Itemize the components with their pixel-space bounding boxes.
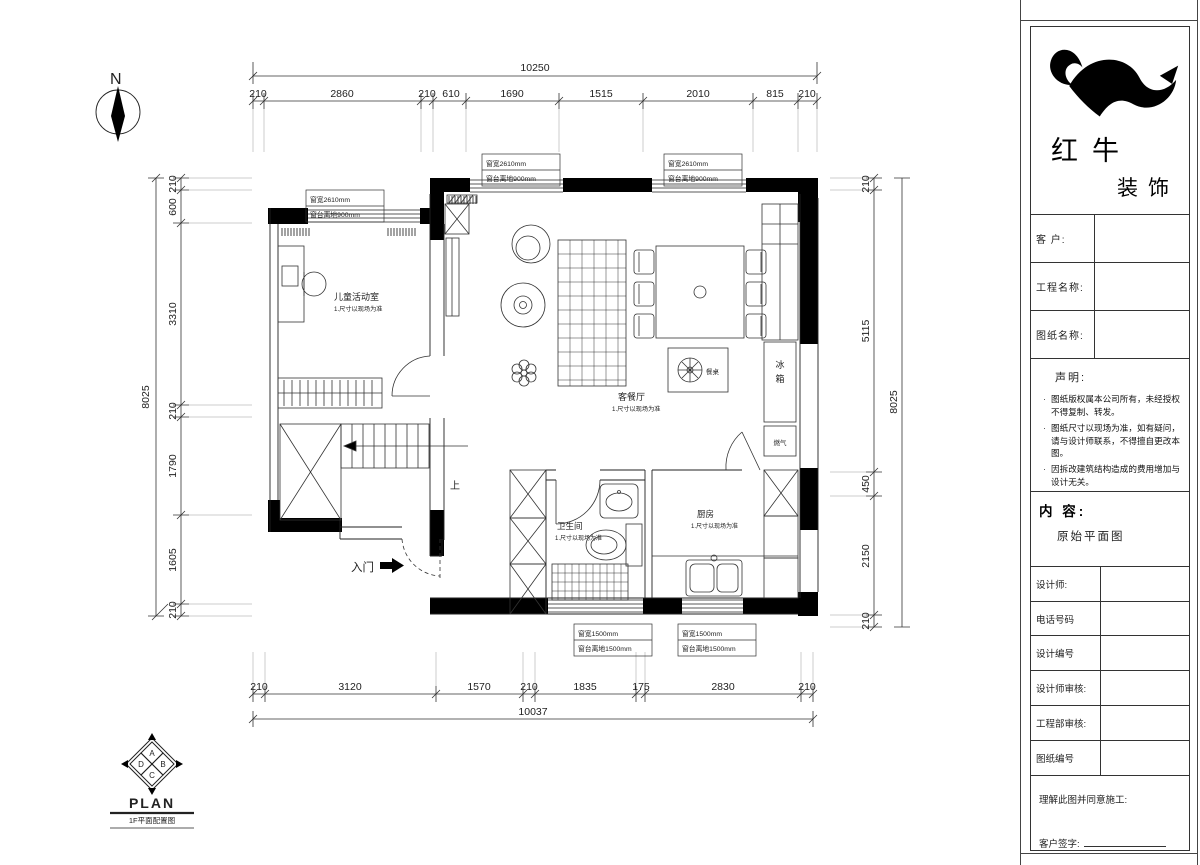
dim-bottom-overall: 10037 [518, 706, 547, 718]
statement-item: 图纸尺寸以现场为准，如有疑问，请与设计师联系，不得擅自更改本图。 [1041, 422, 1183, 461]
sofa [558, 240, 626, 386]
phone-label: 电话号码 [1031, 602, 1101, 636]
dim-chain-left [148, 174, 252, 620]
room-note-living: 1.尺寸以现场为准 [612, 405, 660, 413]
round-table [501, 283, 545, 327]
compass-letter-c: C [149, 771, 155, 780]
dim-label: 5115 [860, 320, 872, 343]
compass-letter-d: D [138, 760, 144, 769]
row-drawing: 图纸名称: [1031, 311, 1189, 359]
dim-labels-right: 8025 210 5115 450 2150 210 [860, 175, 900, 630]
phone-value[interactable] [1101, 602, 1189, 636]
dim-label: 450 [860, 475, 872, 493]
floorplan-canvas: N 10250 210 2860 210 610 1690 1515 2010 … [0, 0, 1020, 865]
room-label-bath: 卫生间 [557, 521, 583, 531]
project-name-value[interactable] [1095, 263, 1189, 310]
signature-block: 理解此图并同意施工: 客户签字: [1031, 776, 1189, 850]
dim-label: 2010 [686, 88, 710, 100]
dim-label: 175 [632, 681, 650, 693]
gas-label: 燃气 [774, 438, 788, 447]
plant-icon [512, 360, 536, 386]
walls [268, 178, 818, 616]
dim-label: 600 [167, 198, 179, 216]
statement-title: 声明: [1055, 369, 1183, 385]
bathroom: 卫生间 1.尺寸以现场为准 [510, 470, 642, 614]
titleblock-border [1197, 0, 1198, 865]
fridge-label-1: 冰 [775, 359, 784, 370]
drawing-sheet: N 10250 210 2860 210 610 1690 1515 2010 … [0, 0, 1200, 865]
window-tag-line1: 窗宽2610mm [668, 159, 708, 168]
plant-icon [678, 358, 702, 382]
sheet-no-value[interactable] [1101, 741, 1189, 775]
dim-label: 210 [798, 681, 816, 693]
design-no-label: 设计编号 [1031, 636, 1101, 670]
dim-labels-top: 10250 210 2860 210 610 1690 1515 2010 81… [249, 62, 816, 100]
window-tag-line1: 窗宽1500mm [682, 629, 722, 638]
titleblock-border [1020, 20, 1198, 21]
dim-label: 210 [167, 402, 179, 420]
room-label-living: 客餐厅 [618, 391, 645, 402]
dim-right-overall: 8025 [888, 390, 900, 414]
dim-label: 210 [860, 175, 872, 193]
content-value: 原始平面图 [1057, 528, 1183, 544]
dim-labels-bottom: 210 3120 1570 210 1835 175 2830 210 1003… [250, 681, 816, 718]
plan-subtitle: 1F平面配置图 [129, 816, 175, 825]
statement-item: 因拆改建筑结构造成的费用增加与设计无关。 [1041, 463, 1183, 489]
row-phone: 电话号码 [1031, 602, 1189, 637]
north-arrow: N [96, 71, 140, 142]
titleblock-frame: 红牛 装饰 客 户: 工程名称: 图纸名称: 声明: 图纸版权属本公司所有，未经… [1030, 26, 1190, 851]
designer-value[interactable] [1101, 567, 1189, 601]
dim-label: 2830 [711, 681, 735, 693]
window-tag-line2: 窗台离地900mm [668, 174, 718, 183]
entry-arrow-icon [392, 558, 404, 573]
dept-audit-label: 工程部审核: [1031, 706, 1101, 740]
dining-chairs [634, 250, 766, 338]
kitchen-cabinet [764, 558, 798, 598]
plan-symbol: A B C D PLAN 1F平面配置图 [110, 733, 194, 828]
room-label-kitchen: 厨房 [697, 509, 714, 519]
dim-label: 210 [167, 601, 179, 619]
statement-block: 声明: 图纸版权属本公司所有，未经授权不得复制、转发。 图纸尺寸以现场为准，如有… [1031, 359, 1189, 492]
project-name-label: 工程名称: [1031, 263, 1095, 310]
dim-chain-top [249, 62, 821, 152]
window-tag-1: 窗宽2610mm 窗台离地900mm [306, 190, 384, 222]
row-designer: 设计师: [1031, 567, 1189, 602]
compass-letter-a: A [149, 749, 155, 758]
armchair [512, 225, 550, 263]
client-value[interactable] [1095, 215, 1189, 262]
dim-label: 210 [167, 175, 179, 193]
bull-logo-icon [1033, 33, 1191, 145]
dim-label: 610 [442, 88, 460, 100]
dim-label: 1835 [573, 681, 597, 693]
titleblock: 红牛 装饰 客 户: 工程名称: 图纸名称: 声明: 图纸版权属本公司所有，未经… [1020, 0, 1200, 865]
plan-title: PLAN [129, 795, 175, 811]
dim-label: 210 [249, 88, 267, 100]
row-client: 客 户: [1031, 215, 1189, 263]
design-no-value[interactable] [1101, 636, 1189, 670]
content-label: 内 容: [1039, 500, 1183, 520]
stair-direction-arrow-icon [344, 441, 356, 451]
kitchen-cabinet [764, 516, 798, 558]
dim-label: 1690 [500, 88, 524, 100]
window-tag-4: 窗宽1500mm 窗台离地1500mm [574, 624, 652, 656]
north-label: N [110, 71, 122, 88]
row-dept-audit: 工程部审核: [1031, 706, 1189, 741]
room-note-bath: 1.尺寸以现场为准 [555, 534, 602, 542]
fridge-label-2: 箱 [775, 373, 784, 384]
window-bottom-2 [682, 600, 743, 612]
window-tag-line2: 窗台离地1500mm [578, 644, 632, 653]
row-sheet-no: 图纸编号 [1031, 741, 1189, 776]
dim-label: 1605 [167, 548, 179, 572]
statement-item: 图纸版权属本公司所有，未经授权不得复制、转发。 [1041, 393, 1183, 419]
row-designer-audit: 设计师审核: [1031, 671, 1189, 706]
window-tag-line2: 窗台离地1500mm [682, 644, 736, 653]
brand-name-sub: 装饰 [1117, 172, 1179, 202]
dept-audit-value[interactable] [1101, 706, 1189, 740]
dim-label: 2150 [860, 544, 872, 568]
signature-field[interactable] [1084, 836, 1166, 847]
titleblock-border [1020, 853, 1198, 854]
dim-labels-left: 8025 210 600 3310 210 1790 1605 210 [140, 175, 179, 619]
right-cabinets: 冰 箱 燃气 [726, 204, 798, 470]
designer-audit-value[interactable] [1101, 671, 1189, 705]
brand-logo-block: 红牛 装饰 [1031, 27, 1189, 215]
dim-left-overall: 8025 [140, 385, 152, 409]
dim-label: 1515 [589, 88, 613, 100]
dim-label: 1570 [467, 681, 491, 693]
designer-audit-label: 设计师审核: [1031, 671, 1101, 705]
window-tag-line1: 窗宽1500mm [578, 629, 618, 638]
kids-room: 儿童活动室 1.尺寸以现场为准 [278, 246, 382, 408]
agree-label: 理解此图并同意施工: [1039, 792, 1181, 806]
room-note-kitchen: 1.尺寸以现场为准 [691, 522, 738, 530]
window-tag-2: 窗宽2610mm 窗台离地900mm [482, 154, 560, 186]
kids-room-door [392, 356, 430, 396]
client-label: 客 户: [1031, 215, 1095, 262]
dining-table [656, 246, 744, 338]
window-bottom-1 [548, 600, 643, 612]
dim-label: 210 [860, 612, 872, 630]
row-design-no: 设计编号 [1031, 636, 1189, 671]
window-tags: 窗宽2610mm 窗台离地900mm 窗宽2610mm 窗台离地900mm 窗宽… [306, 154, 756, 656]
window-tag-line1: 窗宽2610mm [486, 159, 526, 168]
bathroom-door [556, 480, 600, 524]
dim-label: 3310 [167, 302, 179, 326]
dim-top-overall: 10250 [520, 62, 549, 74]
dim-label: 1790 [167, 454, 179, 478]
window-tag-line2: 窗台离地900mm [310, 210, 360, 219]
dim-label: 2860 [330, 88, 354, 100]
dim-label: 815 [766, 88, 784, 100]
living-room: 客餐厅 1.尺寸以现场为准 [445, 195, 660, 413]
dining-area: 餐桌 [634, 246, 766, 392]
window-tag-3: 窗宽2610mm 窗台离地900mm [664, 154, 742, 186]
dim-label: 210 [798, 88, 816, 100]
sheet-no-label: 图纸编号 [1031, 741, 1101, 775]
dim-label: 3120 [338, 681, 362, 693]
toilet-tank [626, 524, 642, 566]
side-cabinet [446, 238, 459, 316]
window-tag-line1: 窗宽2610mm [310, 195, 350, 204]
drawing-name-label: 图纸名称: [1031, 311, 1095, 358]
kitchen-door [726, 432, 760, 470]
designer-label: 设计师: [1031, 567, 1101, 601]
compass-letter-b: B [160, 760, 165, 769]
entry: 入门 [351, 539, 440, 578]
windows [308, 180, 746, 612]
content-block: 内 容: 原始平面图 [1031, 492, 1189, 567]
stair-up-label: 上 [450, 480, 460, 492]
bearing-walls [268, 178, 818, 616]
dim-label: 210 [418, 88, 436, 100]
sign-label: 客户签字: [1039, 839, 1080, 850]
plant-table-label: 餐桌 [706, 367, 720, 376]
titleblock-border [1020, 0, 1021, 865]
dim-label: 210 [520, 681, 538, 693]
window-tag-5: 窗宽1500mm 窗台离地1500mm [678, 624, 756, 656]
drawing-name-value[interactable] [1095, 311, 1189, 358]
window-tag-line2: 窗台离地900mm [486, 174, 536, 183]
row-project: 工程名称: [1031, 263, 1189, 311]
desk-monitor [282, 266, 298, 286]
kitchen: 厨房 1.尺寸以现场为准 [652, 470, 798, 598]
toilet [586, 530, 626, 560]
room-label-kids: 儿童活动室 [334, 291, 379, 302]
wall-lines [270, 194, 818, 614]
duct-column [510, 470, 546, 614]
entry-arrow-icon [380, 562, 392, 569]
desk-chair [302, 272, 326, 296]
entry-label: 入门 [351, 560, 374, 574]
brand-name: 红牛 [1051, 129, 1133, 168]
room-note-kids: 1.尺寸以现场为准 [334, 305, 382, 313]
dim-label: 210 [250, 681, 268, 693]
